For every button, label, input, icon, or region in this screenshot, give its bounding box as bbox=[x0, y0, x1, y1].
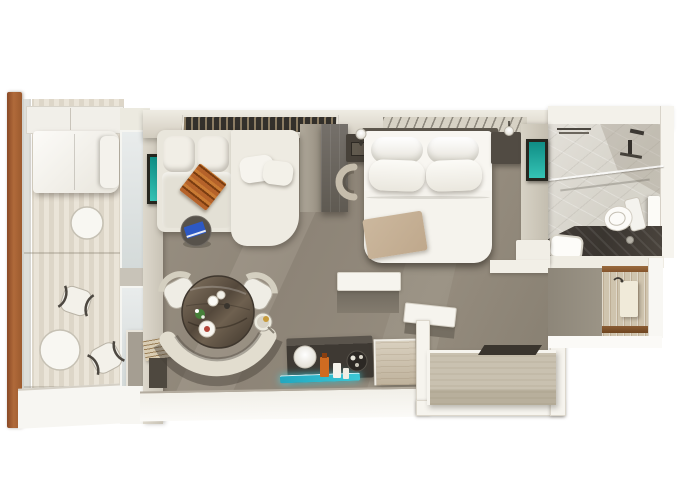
wood-dresser bbox=[374, 339, 417, 386]
wardrobe-divider bbox=[321, 124, 348, 212]
duvet-fold-line bbox=[366, 196, 490, 199]
chaise-pillow-2 bbox=[262, 159, 295, 186]
privacy-divider bbox=[26, 106, 124, 134]
wood-post bbox=[7, 92, 22, 428]
lounger-seam bbox=[74, 134, 75, 190]
corridor-top-wall bbox=[490, 260, 550, 273]
floorplan-canvas bbox=[0, 0, 680, 486]
pillow-front-right bbox=[425, 159, 482, 192]
corridor-bottom-wall bbox=[548, 336, 662, 348]
entry-door bbox=[620, 281, 638, 317]
corridor-floor-shadow bbox=[548, 268, 602, 336]
glass-railing bbox=[22, 99, 32, 421]
wardrobe-slot bbox=[478, 345, 542, 355]
nightstand-right bbox=[491, 132, 521, 164]
wall-niche bbox=[149, 358, 167, 388]
wall-art-teal-2 bbox=[526, 139, 548, 181]
lounger-bolster bbox=[100, 136, 119, 188]
sofa-chaise bbox=[231, 130, 299, 246]
bottom-wall bbox=[140, 386, 430, 421]
privacy-divider-seam bbox=[70, 108, 71, 130]
towel-bar bbox=[557, 128, 591, 130]
deck-joint-line bbox=[24, 252, 120, 254]
wardrobe-unit bbox=[427, 350, 556, 405]
half-wall-ledge-left-top bbox=[337, 272, 401, 291]
balcony-bottom-wall bbox=[18, 383, 126, 429]
pillow-front-left bbox=[368, 159, 425, 192]
corridor-right-wall bbox=[648, 258, 663, 338]
wardrobe-divider-light bbox=[300, 124, 322, 212]
sofa-back-cushion-1 bbox=[163, 136, 195, 172]
threshold-trim-top bbox=[602, 266, 648, 272]
shower-fixture-pipe bbox=[628, 140, 632, 154]
towel-bar-2 bbox=[559, 132, 589, 134]
bathroom-right-wall bbox=[660, 106, 674, 258]
wall-end-cap bbox=[516, 240, 550, 262]
threshold-trim-bottom bbox=[602, 326, 648, 333]
